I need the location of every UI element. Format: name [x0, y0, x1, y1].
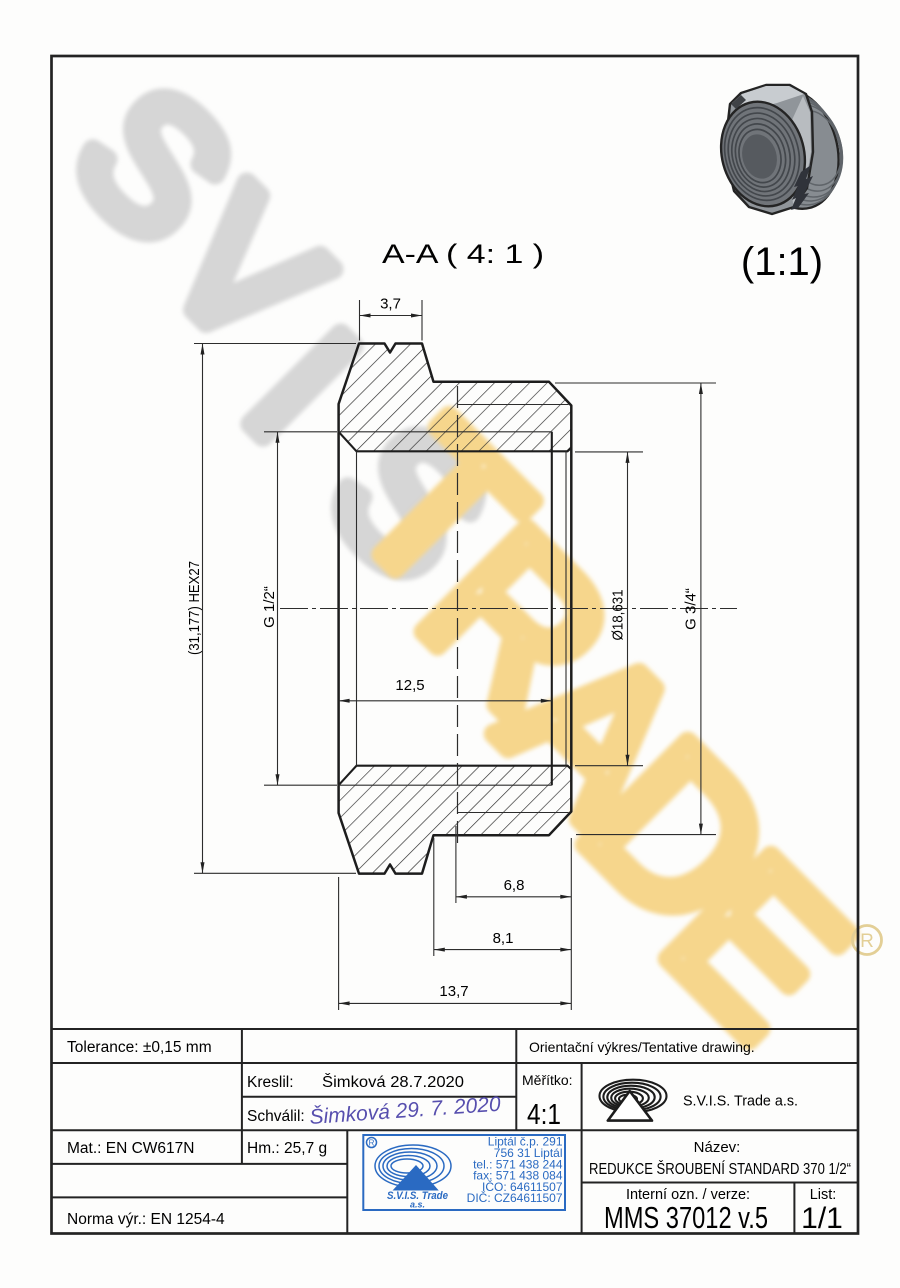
- svg-text:Schválil:: Schválil:: [247, 1108, 305, 1125]
- svg-text:Tolerance: ±0,15 mm: Tolerance: ±0,15 mm: [67, 1039, 212, 1056]
- svg-text:Ø18,631: Ø18,631: [610, 590, 627, 641]
- svg-text:4:1: 4:1: [527, 1099, 561, 1131]
- svg-text:Mat.: EN CW617N: Mat.: EN CW617N: [67, 1140, 194, 1157]
- svg-text:REDUKCE ŠROUBENÍ STANDARD 370: REDUKCE ŠROUBENÍ STANDARD 370 1/2“: [589, 1161, 851, 1178]
- svg-text:Norma výr.: EN 1254-4: Norma výr.: EN 1254-4: [67, 1211, 225, 1228]
- svg-text:3,7: 3,7: [380, 296, 401, 313]
- svg-text:6,8: 6,8: [504, 877, 525, 894]
- svg-text:Měřítko:: Měřítko:: [522, 1072, 573, 1088]
- svg-text:DIČ: CZ64611507: DIČ: CZ64611507: [467, 1190, 563, 1205]
- svg-text:13,7: 13,7: [439, 983, 468, 1000]
- svg-text:1/1: 1/1: [801, 1202, 843, 1235]
- svg-text:Hm.: 25,7 g: Hm.: 25,7 g: [247, 1140, 327, 1157]
- svg-text:G 3/4“: G 3/4“: [683, 588, 700, 630]
- svg-text:Šimková 29. 7. 2020: Šimková 29. 7. 2020: [309, 1093, 502, 1129]
- svg-text:Orientační výkres/Tentative dr: Orientační výkres/Tentative drawing.: [529, 1039, 755, 1055]
- svg-text:List:: List:: [810, 1187, 837, 1203]
- svg-text:R: R: [860, 931, 874, 952]
- svg-text:Kreslil:: Kreslil:: [247, 1074, 294, 1091]
- svg-text:G 1/2“: G 1/2“: [261, 586, 278, 628]
- svg-text:12,5: 12,5: [395, 677, 424, 694]
- svg-text:a.s.: a.s.: [410, 1200, 425, 1210]
- svg-text:(1:1): (1:1): [741, 240, 823, 284]
- svg-text:Šimková 28.7.2020: Šimková 28.7.2020: [322, 1074, 464, 1091]
- svg-text:A-A ( 4: 1 ): A-A ( 4: 1 ): [382, 239, 544, 269]
- svg-text:MMS 37012 v.5: MMS 37012 v.5: [604, 1200, 768, 1235]
- svg-text:(31,177) HEX27: (31,177) HEX27: [186, 561, 203, 655]
- svg-text:Název:: Název:: [694, 1139, 741, 1156]
- svg-text:8,1: 8,1: [493, 930, 514, 947]
- svg-text:R: R: [369, 1139, 375, 1148]
- svg-text:S.V.I.S. Trade a.s.: S.V.I.S. Trade a.s.: [683, 1094, 798, 1110]
